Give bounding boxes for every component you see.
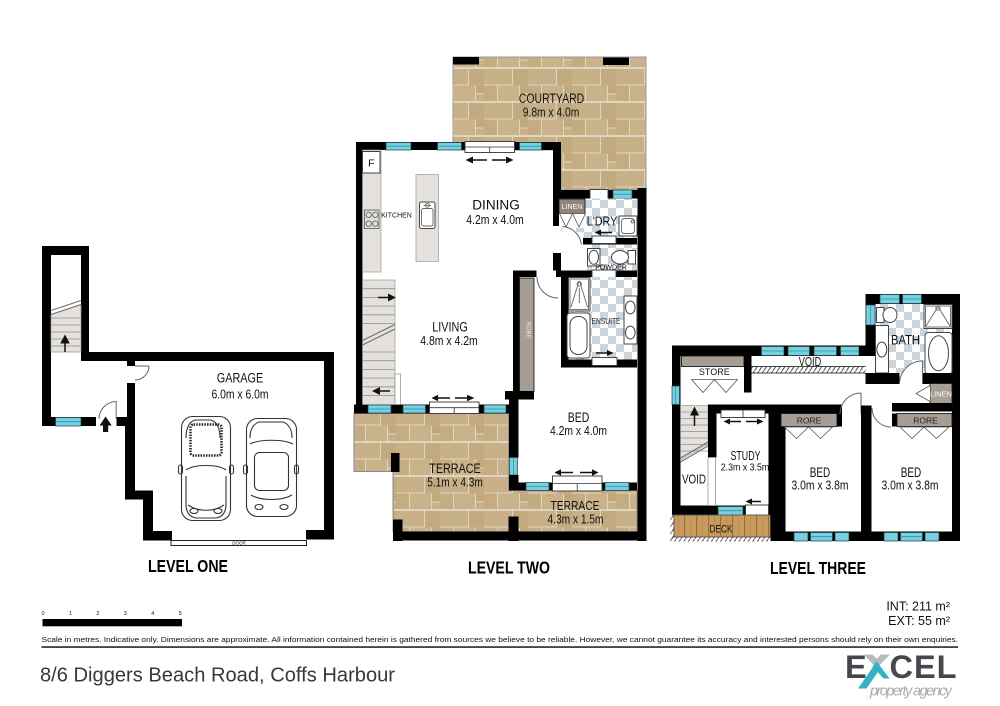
svg-text:4.3m x 1.5m: 4.3m x 1.5m — [548, 512, 604, 527]
svg-text:LEVEL TWO: LEVEL TWO — [468, 558, 550, 578]
svg-text:LINEN: LINEN — [930, 390, 952, 399]
svg-text:3: 3 — [124, 611, 127, 617]
svg-text:4.2m x 4.0m: 4.2m x 4.0m — [466, 212, 524, 227]
svg-text:6.0m x 6.0m: 6.0m x 6.0m — [212, 387, 269, 402]
svg-text:GARAGE: GARAGE — [217, 371, 264, 386]
svg-text:1: 1 — [69, 611, 72, 617]
svg-text:9.8m x 4.0m: 9.8m x 4.0m — [523, 104, 580, 119]
svg-text:2: 2 — [96, 611, 99, 617]
svg-text:4.2m x 4.0m: 4.2m x 4.0m — [550, 423, 607, 438]
svg-text:F: F — [368, 158, 374, 170]
svg-text:2.3m x 3.5m: 2.3m x 3.5m — [721, 462, 770, 473]
svg-text:property agency: property agency — [869, 684, 953, 700]
svg-text:3.0m x 3.8m: 3.0m x 3.8m — [882, 478, 939, 493]
svg-text:EXT: 55 m²: EXT: 55 m² — [888, 614, 950, 628]
svg-text:8/6 Diggers Beach Road, Coffs: 8/6 Diggers Beach Road, Coffs Harbour — [40, 664, 395, 687]
svg-text:STUDY: STUDY — [731, 448, 761, 463]
svg-text:3.0m x 3.8m: 3.0m x 3.8m — [792, 478, 849, 493]
svg-text:4.8m x 4.2m: 4.8m x 4.2m — [420, 333, 478, 348]
svg-text:ROBE: ROBE — [525, 321, 531, 338]
svg-text:VOID: VOID — [682, 472, 706, 486]
svg-text:5.1m x 4.3m: 5.1m x 4.3m — [427, 474, 483, 489]
svg-text:LEVEL ONE: LEVEL ONE — [148, 556, 228, 576]
svg-text:RORE: RORE — [797, 416, 822, 426]
svg-text:BATH: BATH — [891, 332, 920, 347]
svg-text:DOOR: DOOR — [232, 541, 246, 546]
svg-text:DINING: DINING — [472, 197, 520, 212]
svg-text:INT: 211 m²: INT: 211 m² — [886, 600, 950, 614]
svg-text:4: 4 — [151, 611, 154, 617]
svg-text:LINEN: LINEN — [562, 204, 583, 211]
svg-text:0: 0 — [42, 611, 45, 617]
svg-text:KITCHEN: KITCHEN — [381, 213, 412, 220]
svg-text:5: 5 — [179, 611, 182, 617]
svg-text:ENSUITE: ENSUITE — [592, 316, 621, 326]
svg-text:L'DRY: L'DRY — [587, 215, 618, 229]
svg-text:STORE: STORE — [699, 367, 730, 377]
svg-text:LEVEL THREE: LEVEL THREE — [770, 558, 866, 578]
svg-text:CEL: CEL — [890, 649, 958, 685]
svg-text:Scale in metres. Indicative on: Scale in metres. Indicative only. Dimens… — [42, 635, 958, 644]
svg-text:DECK: DECK — [710, 523, 733, 535]
svg-text:RORE: RORE — [913, 416, 938, 426]
svg-text:VOID: VOID — [799, 355, 822, 369]
